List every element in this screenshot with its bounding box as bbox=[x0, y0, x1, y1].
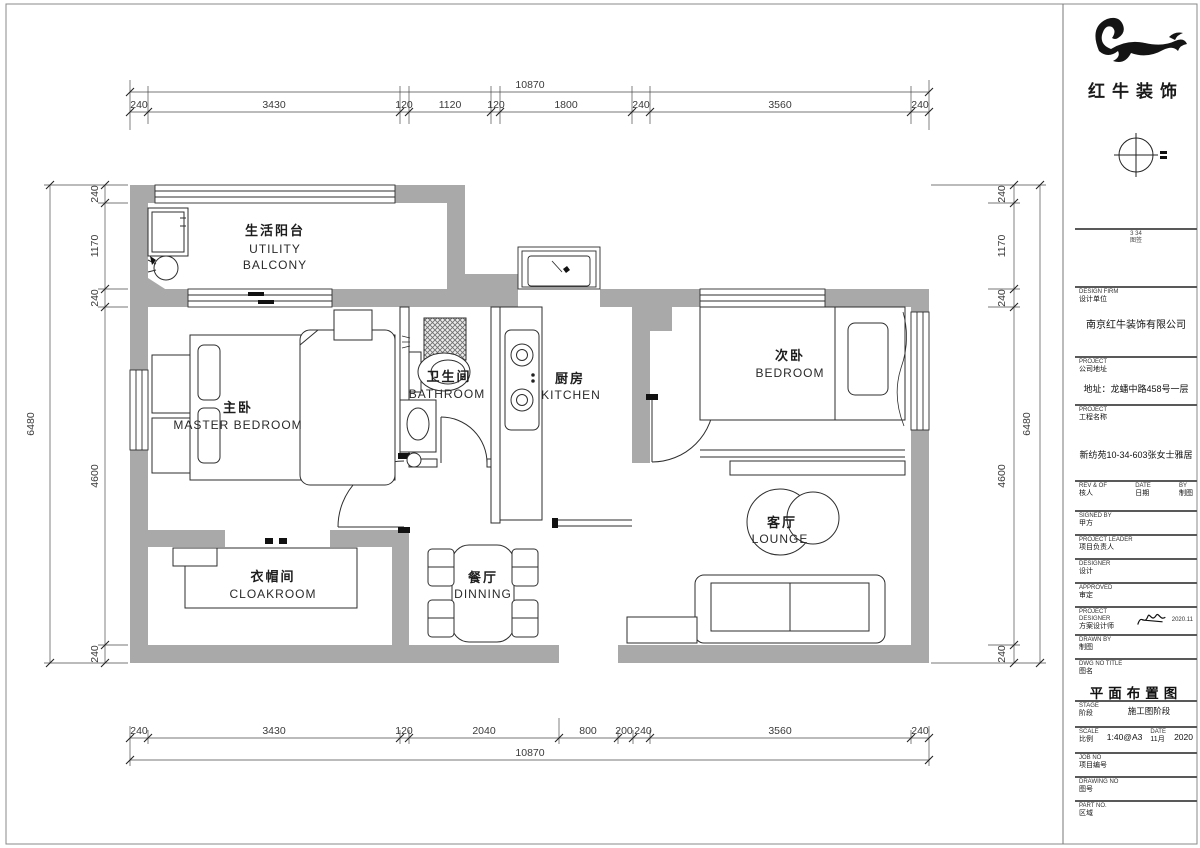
label-bedroom2-zh: 次卧 bbox=[775, 348, 805, 363]
project-label-en: PROJECT bbox=[1079, 407, 1193, 414]
window-bedroom2-top bbox=[700, 289, 825, 307]
approved-label-en: APPROVED bbox=[1079, 585, 1193, 592]
part-label-zh: 区域 bbox=[1079, 810, 1193, 818]
dwg-title-section: DWG NO TITLE 图名 平面布置图 bbox=[1075, 658, 1197, 700]
dwg-label-zh: 图名 bbox=[1079, 668, 1193, 676]
label-bathroom-zh: 卫生间 bbox=[426, 369, 471, 384]
dim: 1170 bbox=[996, 235, 1008, 258]
dim: 3430 bbox=[262, 725, 286, 737]
address-value: 地址：龙蟠中路458号一层 bbox=[1079, 382, 1193, 395]
part-row: PART NO. 区域 bbox=[1075, 800, 1197, 824]
by-label-en: BY bbox=[1179, 483, 1193, 490]
company-logo bbox=[1075, 10, 1197, 76]
dim: 240 bbox=[634, 725, 652, 737]
dwg-label-en: DWG NO TITLE bbox=[1079, 661, 1193, 668]
rev-label-zh: 核人 bbox=[1079, 490, 1107, 498]
dim-right: 6480 240 1170 240 4600 240 bbox=[931, 181, 1046, 667]
project-section: PROJECT 工程名称 新纺苑10-34-603张女士雅居 bbox=[1075, 404, 1197, 480]
date-year-value: 2020 bbox=[1174, 732, 1193, 742]
window-balcony-master bbox=[188, 289, 332, 307]
label-master-en: MASTER BEDROOM bbox=[173, 418, 302, 432]
client-label-en: SIGNED BY bbox=[1079, 513, 1193, 520]
dwgno-row: DRAWING NO 图号 bbox=[1075, 776, 1197, 800]
dim-bottom-overall: 10870 bbox=[515, 747, 544, 759]
bay-window-kitchen bbox=[518, 247, 600, 289]
label-master-zh: 主卧 bbox=[223, 400, 253, 415]
wall-bed2-stub bbox=[650, 307, 672, 331]
project-label-zh: 工程名称 bbox=[1079, 414, 1193, 422]
design-firm-label-en: DESIGN FIRM bbox=[1079, 289, 1193, 296]
north-indicator bbox=[1075, 120, 1197, 190]
divider-lounge-bedroom2 bbox=[700, 450, 905, 475]
dim-left-overall: 6480 bbox=[25, 412, 37, 436]
address-label-zh: 公司地址 bbox=[1079, 366, 1193, 374]
dim-left: 6480 240 1170 240 4600 240 bbox=[25, 181, 128, 667]
dwgno-label-en: DRAWING NO bbox=[1079, 779, 1193, 786]
compass-icon bbox=[1096, 121, 1176, 191]
label-cloakroom-zh: 衣帽间 bbox=[250, 569, 295, 584]
dim: 240 bbox=[911, 99, 929, 111]
bull-logo-icon bbox=[1081, 11, 1191, 73]
dim: 240 bbox=[911, 725, 929, 737]
kitchen-slider bbox=[552, 518, 632, 528]
scale-label-zh: 比例 bbox=[1079, 736, 1099, 744]
wall-cloak-top-b bbox=[330, 530, 409, 547]
dim: 240 bbox=[996, 645, 1008, 663]
door-bathroom bbox=[441, 417, 487, 463]
address-label-en: PROJECT bbox=[1079, 359, 1193, 366]
drawn-label-zh: 制图 bbox=[1079, 644, 1193, 652]
floor-drain bbox=[407, 453, 421, 467]
dim: 3560 bbox=[768, 99, 792, 111]
design-firm-section: DESIGN FIRM 设计单位 南京红牛装饰有限公司 bbox=[1075, 286, 1197, 356]
nightstand-a bbox=[152, 355, 190, 413]
leader-row: PROJECT LEADER 项目负责人 bbox=[1075, 534, 1197, 558]
dim-top: 10870 240 3430 120 1120 120 1800 240 356… bbox=[126, 79, 933, 130]
drawn-row: DRAWN BY 制图 bbox=[1075, 634, 1197, 658]
leader-label-en: PROJECT LEADER bbox=[1079, 537, 1193, 544]
wall-bath-bottom-b bbox=[487, 459, 491, 467]
designer-label-en: DESIGNER bbox=[1079, 561, 1193, 568]
tb-note-2: 图签 bbox=[1079, 238, 1193, 245]
label-dining-zh: 餐厅 bbox=[467, 570, 498, 585]
kitchen-fixtures bbox=[500, 307, 542, 520]
label-bedroom2-en: BEDROOM bbox=[755, 366, 824, 380]
dim: 240 bbox=[130, 99, 148, 111]
by-label-zh: 制图 bbox=[1179, 490, 1193, 498]
dim: 2040 bbox=[472, 725, 496, 737]
design-firm-label-zh: 设计单位 bbox=[1079, 296, 1193, 304]
dim: 4600 bbox=[996, 464, 1008, 488]
balcony-sink bbox=[148, 256, 178, 280]
dim-right-overall: 6480 bbox=[1021, 412, 1033, 436]
dim: 120 bbox=[395, 99, 413, 111]
design-firm-value: 南京红牛装饰有限公司 bbox=[1079, 316, 1193, 331]
date2-label-zh: 11月 bbox=[1150, 736, 1166, 744]
scale-date-row: SCALE 比例 1:40@A3 DATE 11月 2020 bbox=[1075, 726, 1197, 752]
rev-label-en: REV & OF bbox=[1079, 483, 1107, 490]
wall-cloak-right bbox=[392, 547, 409, 645]
title-block: 红牛装饰 3 34 图签 DESIGN FIRM 设计单位 南京红牛装饰有限公司… bbox=[1075, 4, 1197, 844]
label-lounge-en: LOUNGE bbox=[752, 532, 809, 546]
window-balcony-top bbox=[155, 185, 395, 203]
drawing-sheet: 生活阳台 UTILITY BALCONY 主卧 MASTER BEDROOM 卫… bbox=[0, 0, 1200, 848]
address-section: PROJECT 公司地址 地址：龙蟠中路458号一层 bbox=[1075, 356, 1197, 404]
dim: 1120 bbox=[439, 99, 462, 111]
wall-top-main-a bbox=[600, 289, 700, 307]
dim: 3560 bbox=[768, 725, 792, 737]
signature-icon bbox=[1135, 609, 1172, 631]
dim: 240 bbox=[130, 725, 148, 737]
stage-row: STAGE 阶段 施工图阶段 bbox=[1075, 700, 1197, 726]
dim: 240 bbox=[89, 289, 101, 307]
label-bathroom-en: BATHROOM bbox=[409, 387, 485, 401]
dim: 800 bbox=[579, 725, 597, 737]
label-cloakroom-en: CLOAKROOM bbox=[229, 587, 316, 601]
wall-bottom-a bbox=[130, 645, 559, 663]
designer-label-zh: 设计 bbox=[1079, 568, 1193, 576]
side-table bbox=[627, 617, 697, 643]
wall-bath-kitchen bbox=[491, 307, 500, 523]
wall-balcony-right bbox=[447, 185, 465, 307]
tb-note-1: 3 34 bbox=[1079, 231, 1193, 238]
date-label-en: DATE bbox=[1135, 483, 1151, 490]
rev-date-by-row: REV & OF 核人 DATE 日期 BY 制图 bbox=[1075, 480, 1197, 510]
wall-cloak-top-a bbox=[130, 530, 225, 547]
job-label-en: JOB NO bbox=[1079, 755, 1193, 762]
label-balcony-en2: BALCONY bbox=[243, 258, 307, 272]
lounge-furniture bbox=[627, 489, 885, 643]
dim: 120 bbox=[487, 99, 505, 111]
dim-bottom: 10870 240 3430 120 2040 800 200 240 3560… bbox=[126, 718, 933, 766]
stage-value: 施工图阶段 bbox=[1105, 705, 1193, 717]
dim: 240 bbox=[89, 645, 101, 663]
tv-console bbox=[730, 461, 905, 475]
client-label-zh: 甲方 bbox=[1079, 520, 1193, 528]
dim: 120 bbox=[395, 725, 413, 737]
wall-balcony-div-b bbox=[332, 289, 465, 307]
stage-label-zh: 阶段 bbox=[1079, 710, 1099, 718]
label-dining-en: DINNING bbox=[454, 587, 512, 601]
scale-value: 1:40@A3 bbox=[1107, 732, 1143, 742]
washing-machine bbox=[148, 208, 188, 256]
scale-label-en: SCALE bbox=[1079, 729, 1099, 736]
job-row: JOB NO 项目编号 bbox=[1075, 752, 1197, 776]
project-designer-row: PROJECT DESIGNER 方案设计师 2020.11 bbox=[1075, 606, 1197, 634]
dwgno-label-zh: 图号 bbox=[1079, 786, 1193, 794]
wall-bottom-b bbox=[618, 645, 929, 663]
window-bedroom2-right bbox=[911, 312, 929, 430]
dim: 240 bbox=[632, 99, 650, 111]
client-row: SIGNED BY 甲方 bbox=[1075, 510, 1197, 534]
approved-label-zh: 审定 bbox=[1079, 592, 1193, 600]
stage-label-en: STAGE bbox=[1079, 703, 1099, 710]
dim: 1800 bbox=[554, 99, 578, 111]
dim: 4600 bbox=[89, 464, 101, 488]
dim: 200 bbox=[615, 725, 633, 737]
pd-label-en: PROJECT DESIGNER bbox=[1079, 609, 1135, 623]
window-master-left bbox=[130, 370, 148, 450]
pd-label-zh: 方案设计师 bbox=[1079, 623, 1135, 631]
label-kitchen-zh: 厨房 bbox=[555, 371, 585, 386]
wall-kitchen-bed2 bbox=[632, 307, 650, 463]
label-balcony-en1: UTILITY bbox=[249, 242, 301, 256]
floor-plan-svg: 生活阳台 UTILITY BALCONY 主卧 MASTER BEDROOM 卫… bbox=[0, 0, 1200, 848]
designer-row: DESIGNER 设计 bbox=[1075, 558, 1197, 582]
drawing-title: 平面布置图 bbox=[1079, 682, 1193, 702]
part-label-en: PART NO. bbox=[1079, 803, 1193, 810]
wall-top-bay-left bbox=[465, 274, 518, 307]
job-label-zh: 项目编号 bbox=[1079, 762, 1193, 770]
dim: 3430 bbox=[262, 99, 286, 111]
signature-note: 2020.11 bbox=[1172, 617, 1193, 624]
dim: 240 bbox=[996, 185, 1008, 203]
project-value: 新纺苑10-34-603张女士雅居 bbox=[1079, 448, 1193, 461]
brand-name: 红牛装饰 bbox=[1075, 76, 1197, 103]
date2-label-en: DATE bbox=[1150, 729, 1166, 736]
date-label-zh: 日期 bbox=[1135, 490, 1151, 498]
dim-top-overall: 10870 bbox=[515, 79, 544, 91]
dim: 1170 bbox=[89, 235, 101, 258]
master-dresser bbox=[334, 310, 372, 340]
dim: 240 bbox=[89, 185, 101, 203]
master-bed bbox=[152, 310, 395, 485]
label-lounge-zh: 客厅 bbox=[767, 515, 797, 530]
approved-row: APPROVED 审定 bbox=[1075, 582, 1197, 606]
dim: 240 bbox=[996, 289, 1008, 307]
drawn-label-en: DRAWN BY bbox=[1079, 637, 1193, 644]
label-kitchen-en: KITCHEN bbox=[541, 388, 601, 402]
label-balcony-zh: 生活阳台 bbox=[245, 223, 305, 238]
leader-label-zh: 项目负责人 bbox=[1079, 544, 1193, 552]
